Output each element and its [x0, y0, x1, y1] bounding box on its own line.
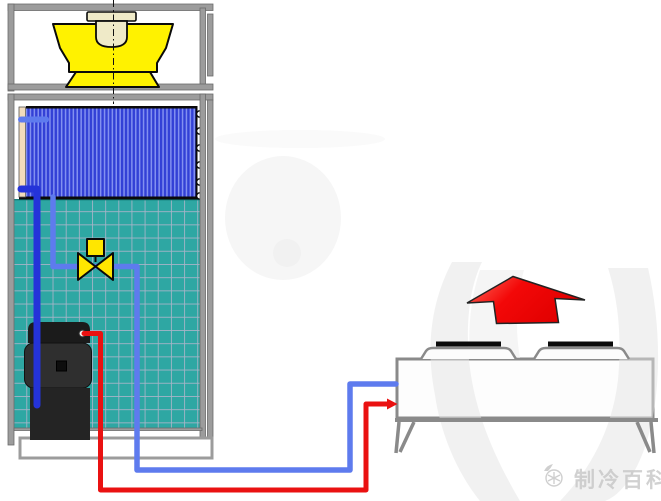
fan-motor-icon	[96, 21, 127, 47]
frame-left-wall-top	[8, 4, 14, 91]
cabinet-base	[20, 438, 212, 458]
coil-fins	[26, 109, 197, 197]
outdoor-condenser-unit	[395, 262, 658, 501]
valve-actuator	[87, 239, 104, 256]
leg	[651, 422, 654, 453]
fan-pedestal	[66, 72, 159, 87]
smudge	[273, 239, 301, 267]
frame-left-wall-main	[8, 94, 14, 445]
fan-motor-flange	[87, 12, 136, 21]
leg	[400, 422, 414, 452]
frame-right-accent-top	[208, 14, 214, 76]
indoor-unit-cabinet	[8, 0, 398, 490]
coil-bottom-edge	[19, 197, 203, 200]
frame-mid-rail-lower	[8, 94, 213, 100]
frame-top-rail	[8, 4, 213, 11]
frame-right-wall-main	[200, 94, 206, 445]
fan-shroud-right	[534, 348, 629, 359]
watermark-text: 制冷百科	[574, 468, 661, 492]
smudge	[215, 130, 385, 148]
watermark: 制冷百科	[544, 464, 661, 492]
snowflake-badge-icon	[544, 464, 562, 486]
background-smudges	[215, 130, 385, 280]
fan-guard-right	[548, 342, 613, 347]
diagram-canvas: 制冷百科	[0, 0, 661, 501]
fan-shroud-left	[421, 348, 516, 359]
coil-right-edge	[196, 106, 198, 200]
leg	[396, 422, 399, 453]
fan-guard-left	[436, 342, 501, 347]
compressor-plate	[57, 361, 67, 371]
frame-right-accent-main	[208, 100, 214, 440]
refrigeration-schematic: 制冷百科	[0, 0, 661, 501]
frame-right-wall-top	[200, 8, 206, 88]
coil-top-edge	[26, 106, 197, 109]
